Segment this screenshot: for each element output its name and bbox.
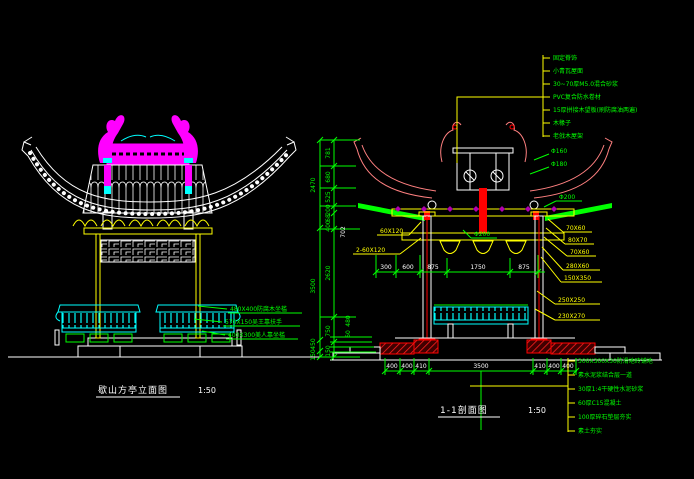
section-bench	[434, 305, 528, 338]
elevation-note-rail: 400X300美人靠坐槛	[228, 331, 285, 339]
dim-left-outer-2: 450	[310, 338, 317, 350]
dim-bot-1: 400	[401, 363, 413, 370]
dim-left-extra-480: 480	[345, 315, 352, 327]
elevation-title-block: 歇山方亭立面图 1:50	[96, 384, 216, 397]
dim-top-2: 875	[427, 264, 439, 271]
label-fascia: 280X60	[566, 263, 589, 270]
section-ridge-curl-left	[441, 122, 461, 162]
dim-left-outer-0: 2470	[310, 177, 317, 192]
ridge-cyan-accent-left	[121, 135, 146, 141]
roof-note-6: 老戗木屋架	[553, 132, 583, 140]
roof-note-2: 30~70厚M5.0混合砂浆	[553, 80, 618, 88]
dim-left-inner-2: 525	[325, 191, 332, 203]
roof-tile-ribs	[83, 165, 212, 213]
dim-top-0: 300	[380, 264, 392, 271]
dim-top-1: 600	[402, 264, 414, 271]
ridge-frame	[453, 148, 513, 190]
dim-left-inner-6: 2620	[325, 265, 332, 280]
elevation-note-backrail: 570X150吴王靠扶手	[225, 318, 282, 326]
elevation-title: 歇山方亭立面图	[98, 384, 168, 396]
ridge-cyan-accent-right	[150, 135, 175, 141]
roof-note-0: 固定脊饰	[553, 54, 577, 62]
dim-bot-3: 3500	[473, 363, 488, 370]
section-right-tip	[605, 138, 612, 149]
elevation-note-seat: 480X400防腐木坐槛	[230, 305, 287, 313]
roof-note-3: PVC复合防水卷材	[553, 93, 601, 101]
dim-left-extra-60: 60	[345, 330, 352, 338]
label-purlin-c: 70X60	[570, 249, 590, 256]
label-beam-b: 250X250	[558, 297, 585, 304]
label-dia-160: Φ160	[551, 148, 567, 155]
label-dia-200-center: Φ200	[474, 231, 490, 238]
cad-canvas: 480X400防腐木坐槛 570X150吴王靠扶手 400X300美人靠坐槛 歇…	[0, 0, 694, 479]
section-title-block: 1-1剖面图 1:50	[438, 404, 546, 417]
dim-left-inner-0: 781	[325, 147, 332, 159]
floor-note-0: 300X300X30防滑地砖铺地	[578, 357, 653, 365]
dim-left-inner-1: 680	[325, 171, 332, 183]
elevation-scale: 1:50	[198, 386, 216, 395]
platform	[78, 338, 242, 357]
purlin-section-left	[428, 201, 436, 209]
bench-end-post-left	[55, 330, 59, 345]
bracket-cups	[440, 241, 526, 254]
main-ridge	[98, 115, 198, 164]
bottom-dim-row: 400 400 410 3500 410 400 400	[382, 358, 579, 430]
floor-note-1: 素水泥浆结合层一道	[578, 371, 632, 379]
dim-left-inner-5: 400	[325, 220, 332, 232]
section-title: 1-1剖面图	[440, 404, 488, 416]
right-corner-tip	[286, 137, 296, 156]
bench-left	[56, 305, 140, 342]
label-beam-c: 230X270	[558, 313, 585, 320]
label-dia-200-right: Φ200	[559, 194, 575, 201]
floor-note-2: 30厚1:4干硬性水泥砂浆	[578, 385, 643, 393]
label-dia-180: Φ180	[551, 161, 567, 168]
floor-note-3: 60厚C15混凝土	[578, 399, 621, 407]
purlin-section-right	[530, 201, 538, 209]
label-beam-a: 150X350	[564, 275, 591, 282]
dim-bot-0: 400	[386, 363, 398, 370]
bracket-fans	[73, 220, 209, 226]
dim-bot-5: 400	[548, 363, 560, 370]
label-purlin-a: 70X60	[566, 225, 586, 232]
top-dim-row: 300 600 875 1750 875	[373, 255, 545, 278]
floor-note-4: 100厚碎石垫层夯实	[578, 413, 631, 421]
label-double-batten: 2-60X120	[356, 247, 385, 254]
foundation	[330, 338, 662, 360]
dim-left-inner-8: 150	[325, 345, 332, 357]
roof-note-5: 木椽子	[553, 119, 571, 127]
dim-left-extra-702: 702	[340, 226, 347, 238]
king-post	[479, 188, 487, 233]
roof-note-1: 小青瓦屋面	[553, 67, 583, 75]
cad-drawing-svg: 480X400防腐木坐槛 570X150吴王靠扶手 400X300美人靠坐槛 歇…	[0, 0, 694, 479]
dim-top-4: 875	[518, 264, 530, 271]
section-scale: 1:50	[528, 406, 546, 415]
dim-left-inner-7: 750	[325, 325, 332, 337]
roof-note-4: 15厚拼接木望板(刷防腐油两遍)	[553, 106, 637, 114]
section-column-left	[416, 212, 438, 346]
left-dim-chain: 2470 3500 450 150 781 680 525 200 68 400…	[310, 137, 360, 361]
elevation-drawing: 480X400防腐木坐槛 570X150吴王靠扶手 400X300美人靠坐槛 歇…	[8, 115, 332, 397]
eave-board-right	[545, 203, 612, 221]
dim-left-inner-3: 200	[325, 204, 332, 216]
dim-bot-4: 410	[534, 363, 546, 370]
floor-note-5: 素土夯实	[578, 427, 602, 435]
dim-left-outer-1: 3500	[310, 278, 317, 293]
label-purlin-b: 80X70	[568, 237, 588, 244]
dim-left-outer-3: 150	[310, 349, 317, 361]
section-drawing: 2470 3500 450 150 781 680 525 200 68 400…	[310, 54, 662, 435]
label-rafter-batten: 60X120	[380, 228, 403, 235]
dim-top-3: 1750	[470, 264, 485, 271]
section-column-right	[528, 212, 550, 346]
dim-bot-2: 410	[415, 363, 427, 370]
lattice-valance	[101, 240, 195, 262]
